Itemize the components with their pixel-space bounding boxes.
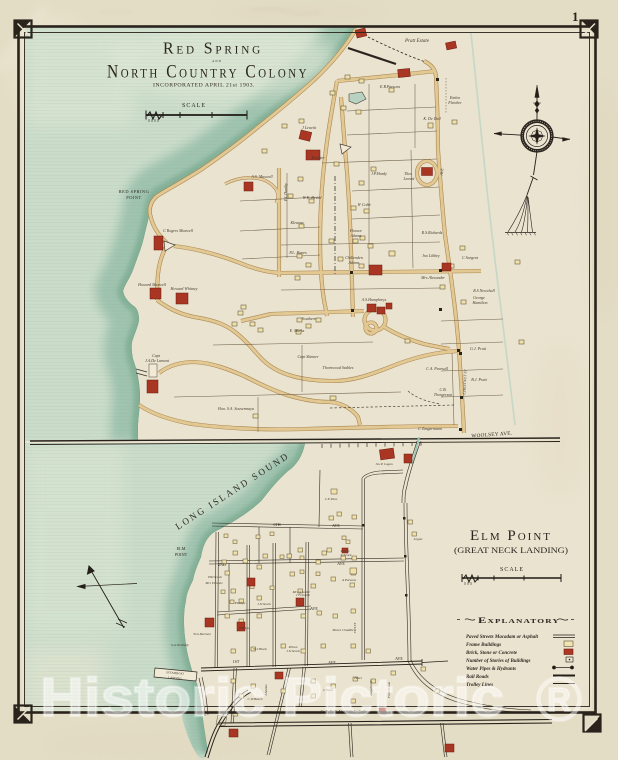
svg-text:Explanatory: Explanatory <box>478 615 560 625</box>
svg-text:POINT: POINT <box>175 552 188 557</box>
svg-text:AVE: AVE <box>310 606 318 611</box>
svg-text:1ST: 1ST <box>233 659 240 664</box>
svg-text:(GREAT NECK LANDING): (GREAT NECK LANDING) <box>454 545 568 555</box>
svg-text:A Parsons: A Parsons <box>341 578 357 582</box>
svg-text:Southern: Southern <box>302 316 316 321</box>
svg-text:Thornwood Stables: Thornwood Stables <box>322 365 353 370</box>
svg-text:ELM: ELM <box>177 546 186 551</box>
svg-text:SCALE: SCALE <box>182 103 206 109</box>
svg-text:E.B.Parsons: E.B.Parsons <box>379 84 400 89</box>
svg-text:Phillips: Phillips <box>238 626 250 630</box>
svg-text:Elm Point: Elm Point <box>470 528 552 544</box>
svg-text:S.A.VanNally: S.A.VanNally <box>171 643 189 647</box>
svg-text:POINT: POINT <box>126 195 141 200</box>
svg-text:5TH ST: 5TH ST <box>353 622 357 634</box>
svg-text:Hitchcock: Hitchcock <box>207 575 222 579</box>
svg-text:C.A. Pearsall: C.A. Pearsall <box>426 366 449 371</box>
svg-text:J Schenck: J Schenck <box>257 602 271 606</box>
svg-text:A.S.Humphreys: A.S.Humphreys <box>361 297 387 302</box>
svg-text:Moses Chaddle: Moses Chaddle <box>331 628 353 632</box>
svg-text:R: R <box>547 681 571 718</box>
svg-text:North Country Colony: North Country Colony <box>107 63 309 83</box>
svg-text:Red Spring: Red Spring <box>163 39 263 58</box>
svg-text:Brick, Stone or Concrete: Brick, Stone or Concrete <box>465 651 518 656</box>
svg-text:J.A.De Lamont: J.A.De Lamont <box>145 358 170 363</box>
svg-text:Jno Libbey: Jno Libbey <box>422 253 440 258</box>
svg-text:Hon. S.A. Sousermaya: Hon. S.A. Sousermaya <box>217 406 254 411</box>
svg-text:W.J.Black: W.J.Black <box>253 647 267 651</box>
svg-text:Logan: Logan <box>413 537 423 541</box>
svg-text:Capt Skinner: Capt Skinner <box>298 354 319 359</box>
svg-text:Mrs Alexander: Mrs Alexander <box>420 275 445 280</box>
svg-text:R.S.Richards: R.S.Richards <box>421 230 443 235</box>
svg-text:Fletcher: Fletcher <box>447 100 462 105</box>
svg-text:Paved Streets Macadam or Aspha: Paved Streets Macadam or Asphalt <box>466 635 539 640</box>
svg-text:2ND: 2ND <box>218 562 226 567</box>
svg-text:Phillips: Phillips <box>234 601 246 605</box>
svg-text:P.L.Danihy: P.L.Danihy <box>283 183 288 202</box>
svg-text:Rossiter: Rossiter <box>310 155 325 160</box>
svg-text:AVE: AVE <box>332 523 340 528</box>
svg-text:C Rogers Maxwell: C Rogers Maxwell <box>163 228 194 233</box>
svg-text:W Cobb: W Cobb <box>358 202 371 207</box>
svg-text:INCORPORATED APRIL 21st 1903.: INCORPORATED APRIL 21st 1903. <box>153 84 255 89</box>
svg-text:SCALE: SCALE <box>500 567 524 573</box>
svg-text:W.G.Barnum: W.G.Barnum <box>193 632 211 636</box>
svg-text:J.P.Hardy: J.P.Hardy <box>371 171 387 176</box>
svg-text:G.J. Pratt: G.J. Pratt <box>470 346 487 351</box>
svg-text:Leavitt: Leavitt <box>402 176 415 181</box>
svg-text:6TH: 6TH <box>273 522 280 527</box>
svg-text:W.K. Heard: W.K. Heard <box>303 195 323 200</box>
svg-text:AVE: AVE <box>328 660 336 665</box>
svg-text:AVE: AVE <box>438 167 444 176</box>
svg-text:E. Marks: E. Marks <box>289 328 305 333</box>
svg-text:Frame Buildings: Frame Buildings <box>466 643 501 648</box>
svg-text:1: 1 <box>572 9 579 24</box>
svg-text:Jos P. Logan: Jos P. Logan <box>375 462 393 466</box>
svg-text:J Franklin: J Franklin <box>296 593 311 597</box>
svg-text:Howard Maxwell: Howard Maxwell <box>137 282 167 287</box>
svg-text:J Leavitt: J Leavitt <box>302 125 317 130</box>
svg-text:P.L. Hanes: P.L. Hanes <box>288 250 307 255</box>
svg-text:AVE: AVE <box>395 656 403 661</box>
svg-text:Schenck: Schenck <box>340 553 352 557</box>
svg-text:A.S. Maxwell: A.S. Maxwell <box>250 174 273 179</box>
svg-text:Number of Stories of Buildings: Number of Stories of Buildings <box>465 659 531 664</box>
svg-text:Hamilton: Hamilton <box>471 300 487 305</box>
svg-text:Mrs Thombs: Mrs Thombs <box>204 581 223 585</box>
svg-text:R.S.Newchall: R.S.Newchall <box>472 288 495 293</box>
svg-text:Thorgerson: Thorgerson <box>434 392 453 397</box>
svg-text:Pratt Estate: Pratt Estate <box>404 39 430 44</box>
svg-text:C.E.Titus: C.E.Titus <box>325 497 338 501</box>
svg-text:Adams: Adams <box>348 260 360 265</box>
svg-text:Adams: Adams <box>350 233 362 238</box>
svg-text:Howard Whitney: Howard Whitney <box>169 286 197 291</box>
svg-text:C Tangermann: C Tangermann <box>418 426 442 431</box>
svg-text:AVE: AVE <box>337 561 345 566</box>
svg-text:J Schenck: J Schenck <box>286 649 300 653</box>
svg-text:K. De Dell: K. De Dell <box>422 116 441 121</box>
svg-text:B.J. Pratt: B.J. Pratt <box>471 377 487 382</box>
svg-text:Klearna: Klearna <box>289 220 303 225</box>
svg-text:RED SPRING: RED SPRING <box>119 189 150 194</box>
svg-text:Historic Pictoric: Historic Pictoric <box>40 666 504 728</box>
svg-text:C Sargent: C Sargent <box>462 255 479 260</box>
